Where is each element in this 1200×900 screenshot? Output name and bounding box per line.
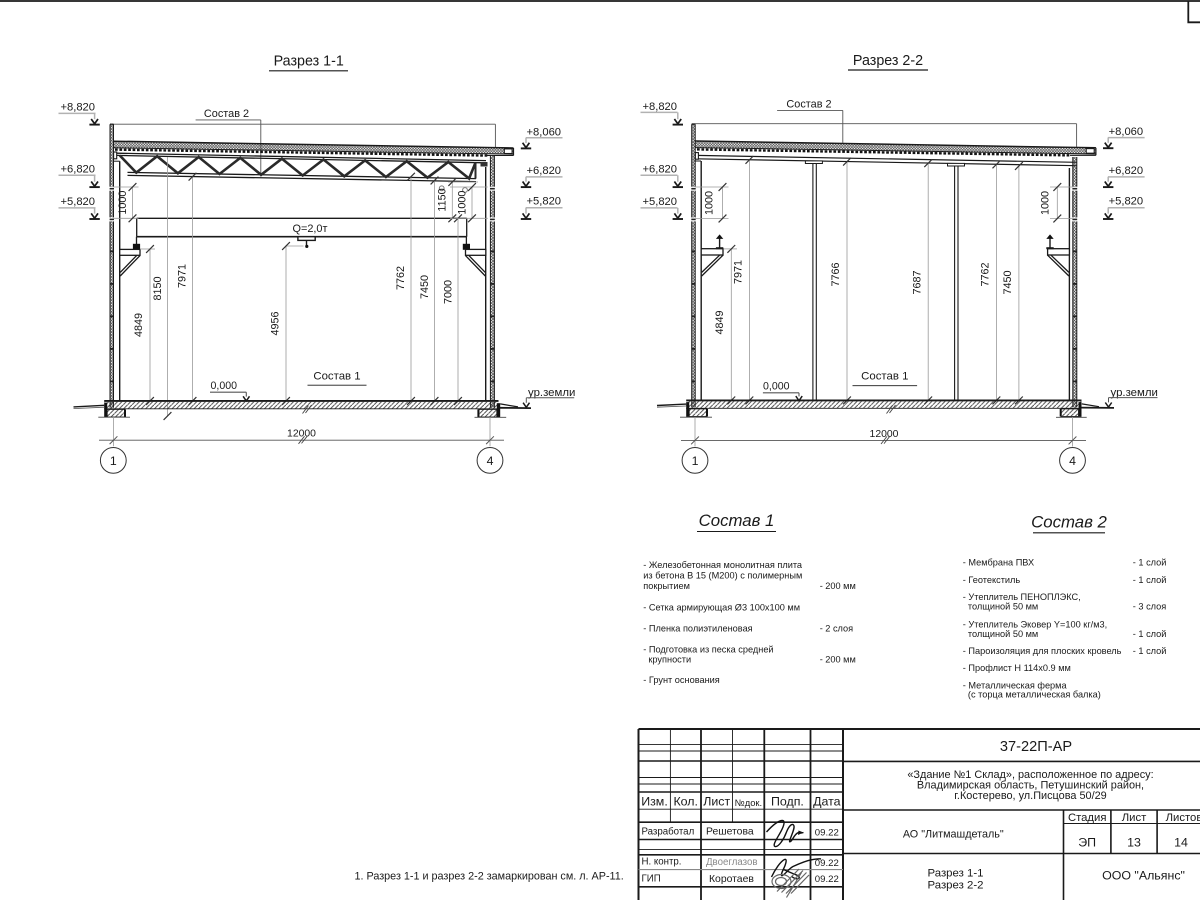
svg-text:- Подготовка из песка средней: - Подготовка из песка средней: [643, 644, 773, 654]
svg-text:ООО "Альянс": ООО "Альянс": [1102, 869, 1185, 883]
svg-text:- 2 слоя: - 2 слоя: [820, 624, 853, 634]
svg-text:- 1 слой: - 1 слой: [1133, 646, 1167, 656]
svg-text:Q=2,0т: Q=2,0т: [293, 223, 328, 235]
svg-text:4956: 4956: [270, 311, 282, 335]
svg-text:1: 1: [110, 454, 117, 468]
svg-text:- Пленка полиэтиленовая: - Пленка полиэтиленовая: [643, 624, 752, 634]
svg-text:4: 4: [1069, 454, 1076, 468]
svg-text:09.22: 09.22: [815, 858, 839, 869]
svg-text:7766: 7766: [830, 262, 842, 286]
svg-text:- Утеплитель ПЕНОПЛЭКС,: - Утеплитель ПЕНОПЛЭКС,: [963, 592, 1081, 602]
svg-text:Состав 1: Состав 1: [861, 370, 908, 382]
svg-text:Состав 1: Состав 1: [699, 511, 775, 530]
svg-text:13: 13: [1127, 836, 1141, 850]
svg-text:37-22П-АР: 37-22П-АР: [1000, 739, 1072, 755]
svg-text:+8,060: +8,060: [527, 126, 562, 138]
svg-text:+8,820: +8,820: [642, 101, 677, 113]
svg-text:- Утеплитель Эковер Y=100 кг/м: - Утеплитель Эковер Y=100 кг/м3,: [963, 620, 1107, 630]
svg-text:7450: 7450: [419, 275, 431, 299]
svg-text:- Геотекстиль: - Геотекстиль: [963, 575, 1021, 585]
svg-text:АО "Литмашдеталь": АО "Литмашдеталь": [903, 828, 1004, 840]
svg-text:Дата: Дата: [813, 794, 841, 808]
svg-text:Разрез 2-2: Разрез 2-2: [853, 53, 923, 69]
svg-text:8150: 8150: [152, 276, 164, 300]
svg-text:Лист: Лист: [1122, 812, 1147, 824]
svg-text:7971: 7971: [176, 264, 188, 288]
svg-text:1000: 1000: [1040, 191, 1052, 215]
svg-text:толщиной 50 мм: толщиной 50 мм: [963, 629, 1038, 639]
svg-text:- Сетка армирующая Ø3 100х100: - Сетка армирующая Ø3 100х100 мм: [643, 603, 800, 613]
svg-text:Состав 1: Состав 1: [313, 370, 360, 382]
svg-text:Разрез 1-1: Разрез 1-1: [274, 54, 344, 70]
svg-text:4849: 4849: [133, 313, 145, 337]
svg-text:+5,820: +5,820: [60, 196, 95, 208]
svg-text:+8,060: +8,060: [1109, 126, 1144, 138]
svg-text:- 1 слой: - 1 слой: [1133, 575, 1167, 585]
svg-text:(с торца металлическая балка): (с торца металлическая балка): [963, 690, 1101, 700]
svg-text:+6,820: +6,820: [60, 163, 95, 175]
svg-text:Подп.: Подп.: [771, 794, 804, 808]
svg-text:Состав 2: Состав 2: [1031, 513, 1107, 532]
svg-text:1: 1: [692, 454, 699, 468]
svg-text:7971: 7971: [732, 260, 744, 284]
svg-text:из бетона В 15 (М200) с полиме: из бетона В 15 (М200) с полимерным: [643, 570, 802, 580]
svg-text:Изм.: Изм.: [641, 794, 668, 808]
svg-text:0,000: 0,000: [763, 381, 790, 393]
svg-text:7687: 7687: [911, 270, 923, 294]
svg-text:ЭП: ЭП: [1078, 836, 1096, 850]
svg-text:крупности: крупности: [643, 655, 691, 665]
svg-text:1150: 1150: [436, 188, 448, 211]
svg-text:- Профлист Н 114х0.9 мм: - Профлист Н 114х0.9 мм: [963, 663, 1071, 673]
svg-text:Состав 2: Состав 2: [786, 99, 831, 111]
svg-text:4: 4: [487, 454, 494, 468]
svg-text:г.Костерево, ул.Писцова 50/29: г.Костерево, ул.Писцова 50/29: [954, 790, 1106, 802]
svg-text:- 200 мм: - 200 мм: [820, 581, 856, 591]
svg-text:- Пароизоляция для плоских кро: - Пароизоляция для плоских кровель: [963, 646, 1122, 656]
svg-text:Состав 2: Состав 2: [204, 108, 249, 120]
svg-text:ур.земли: ур.земли: [1111, 387, 1158, 399]
svg-text:1000: 1000: [456, 191, 468, 215]
svg-text:- 1 слой: - 1 слой: [1133, 557, 1167, 567]
svg-text:Двоеглазов: Двоеглазов: [706, 857, 758, 868]
svg-text:Разрез 1-1: Разрез 1-1: [928, 868, 984, 880]
svg-text:+5,820: +5,820: [642, 196, 677, 208]
svg-text:покрытием: покрытием: [643, 581, 690, 591]
svg-text:толщиной 50 мм: толщиной 50 мм: [963, 602, 1038, 612]
svg-text:Решетова: Решетова: [706, 827, 754, 838]
svg-text:7450: 7450: [1002, 270, 1014, 294]
svg-text:+8,820: +8,820: [60, 101, 95, 113]
svg-text:+6,820: +6,820: [642, 163, 677, 175]
svg-text:12000: 12000: [287, 429, 316, 440]
svg-text:09.22: 09.22: [815, 874, 839, 885]
svg-text:14: 14: [1174, 836, 1188, 850]
svg-text:- Железобетонная монолитная п: - Железобетонная монолитная плита: [643, 560, 803, 570]
svg-text:№док.: №док.: [735, 797, 762, 808]
svg-text:- 1 слой: - 1 слой: [1133, 629, 1167, 639]
svg-text:Коротаев: Коротаев: [709, 874, 754, 885]
svg-text:12000: 12000: [870, 429, 899, 440]
svg-text:7762: 7762: [980, 262, 992, 286]
svg-text:Стадия: Стадия: [1068, 812, 1107, 824]
svg-text:+6,820: +6,820: [527, 165, 562, 177]
svg-text:- Грунт основания: - Грунт основания: [643, 675, 719, 685]
svg-text:Разработал: Разработал: [642, 827, 695, 838]
svg-text:- Мембрана ПВХ: - Мембрана ПВХ: [963, 557, 1034, 567]
svg-text:- 200 мм: - 200 мм: [820, 655, 856, 665]
svg-text:Лист: Лист: [703, 794, 730, 808]
svg-text:4849: 4849: [714, 310, 726, 334]
svg-text:7762: 7762: [395, 266, 407, 290]
svg-text:Кол.: Кол.: [673, 794, 698, 808]
svg-text:Разрез 2-2: Разрез 2-2: [928, 879, 984, 891]
svg-text:ур.земли: ур.земли: [528, 387, 575, 399]
svg-text:+5,820: +5,820: [527, 196, 562, 208]
svg-text:ГИП: ГИП: [642, 874, 661, 885]
svg-text:+6,820: +6,820: [1109, 165, 1144, 177]
svg-text:7000: 7000: [443, 280, 455, 304]
svg-text:+5,820: +5,820: [1109, 196, 1144, 208]
svg-text:1000: 1000: [117, 191, 129, 215]
svg-text:1. Разрез 1-1 и разрез 2-2 зам: 1. Разрез 1-1 и разрез 2-2 замаркирован …: [355, 871, 624, 883]
svg-text:- 3 слоя: - 3 слоя: [1133, 602, 1166, 612]
svg-text:1000: 1000: [704, 191, 716, 215]
svg-text:Н. контр.: Н. контр.: [642, 857, 682, 868]
svg-text:Листов: Листов: [1166, 812, 1200, 824]
svg-text:0,000: 0,000: [211, 380, 238, 392]
svg-text:09.22: 09.22: [815, 828, 839, 839]
